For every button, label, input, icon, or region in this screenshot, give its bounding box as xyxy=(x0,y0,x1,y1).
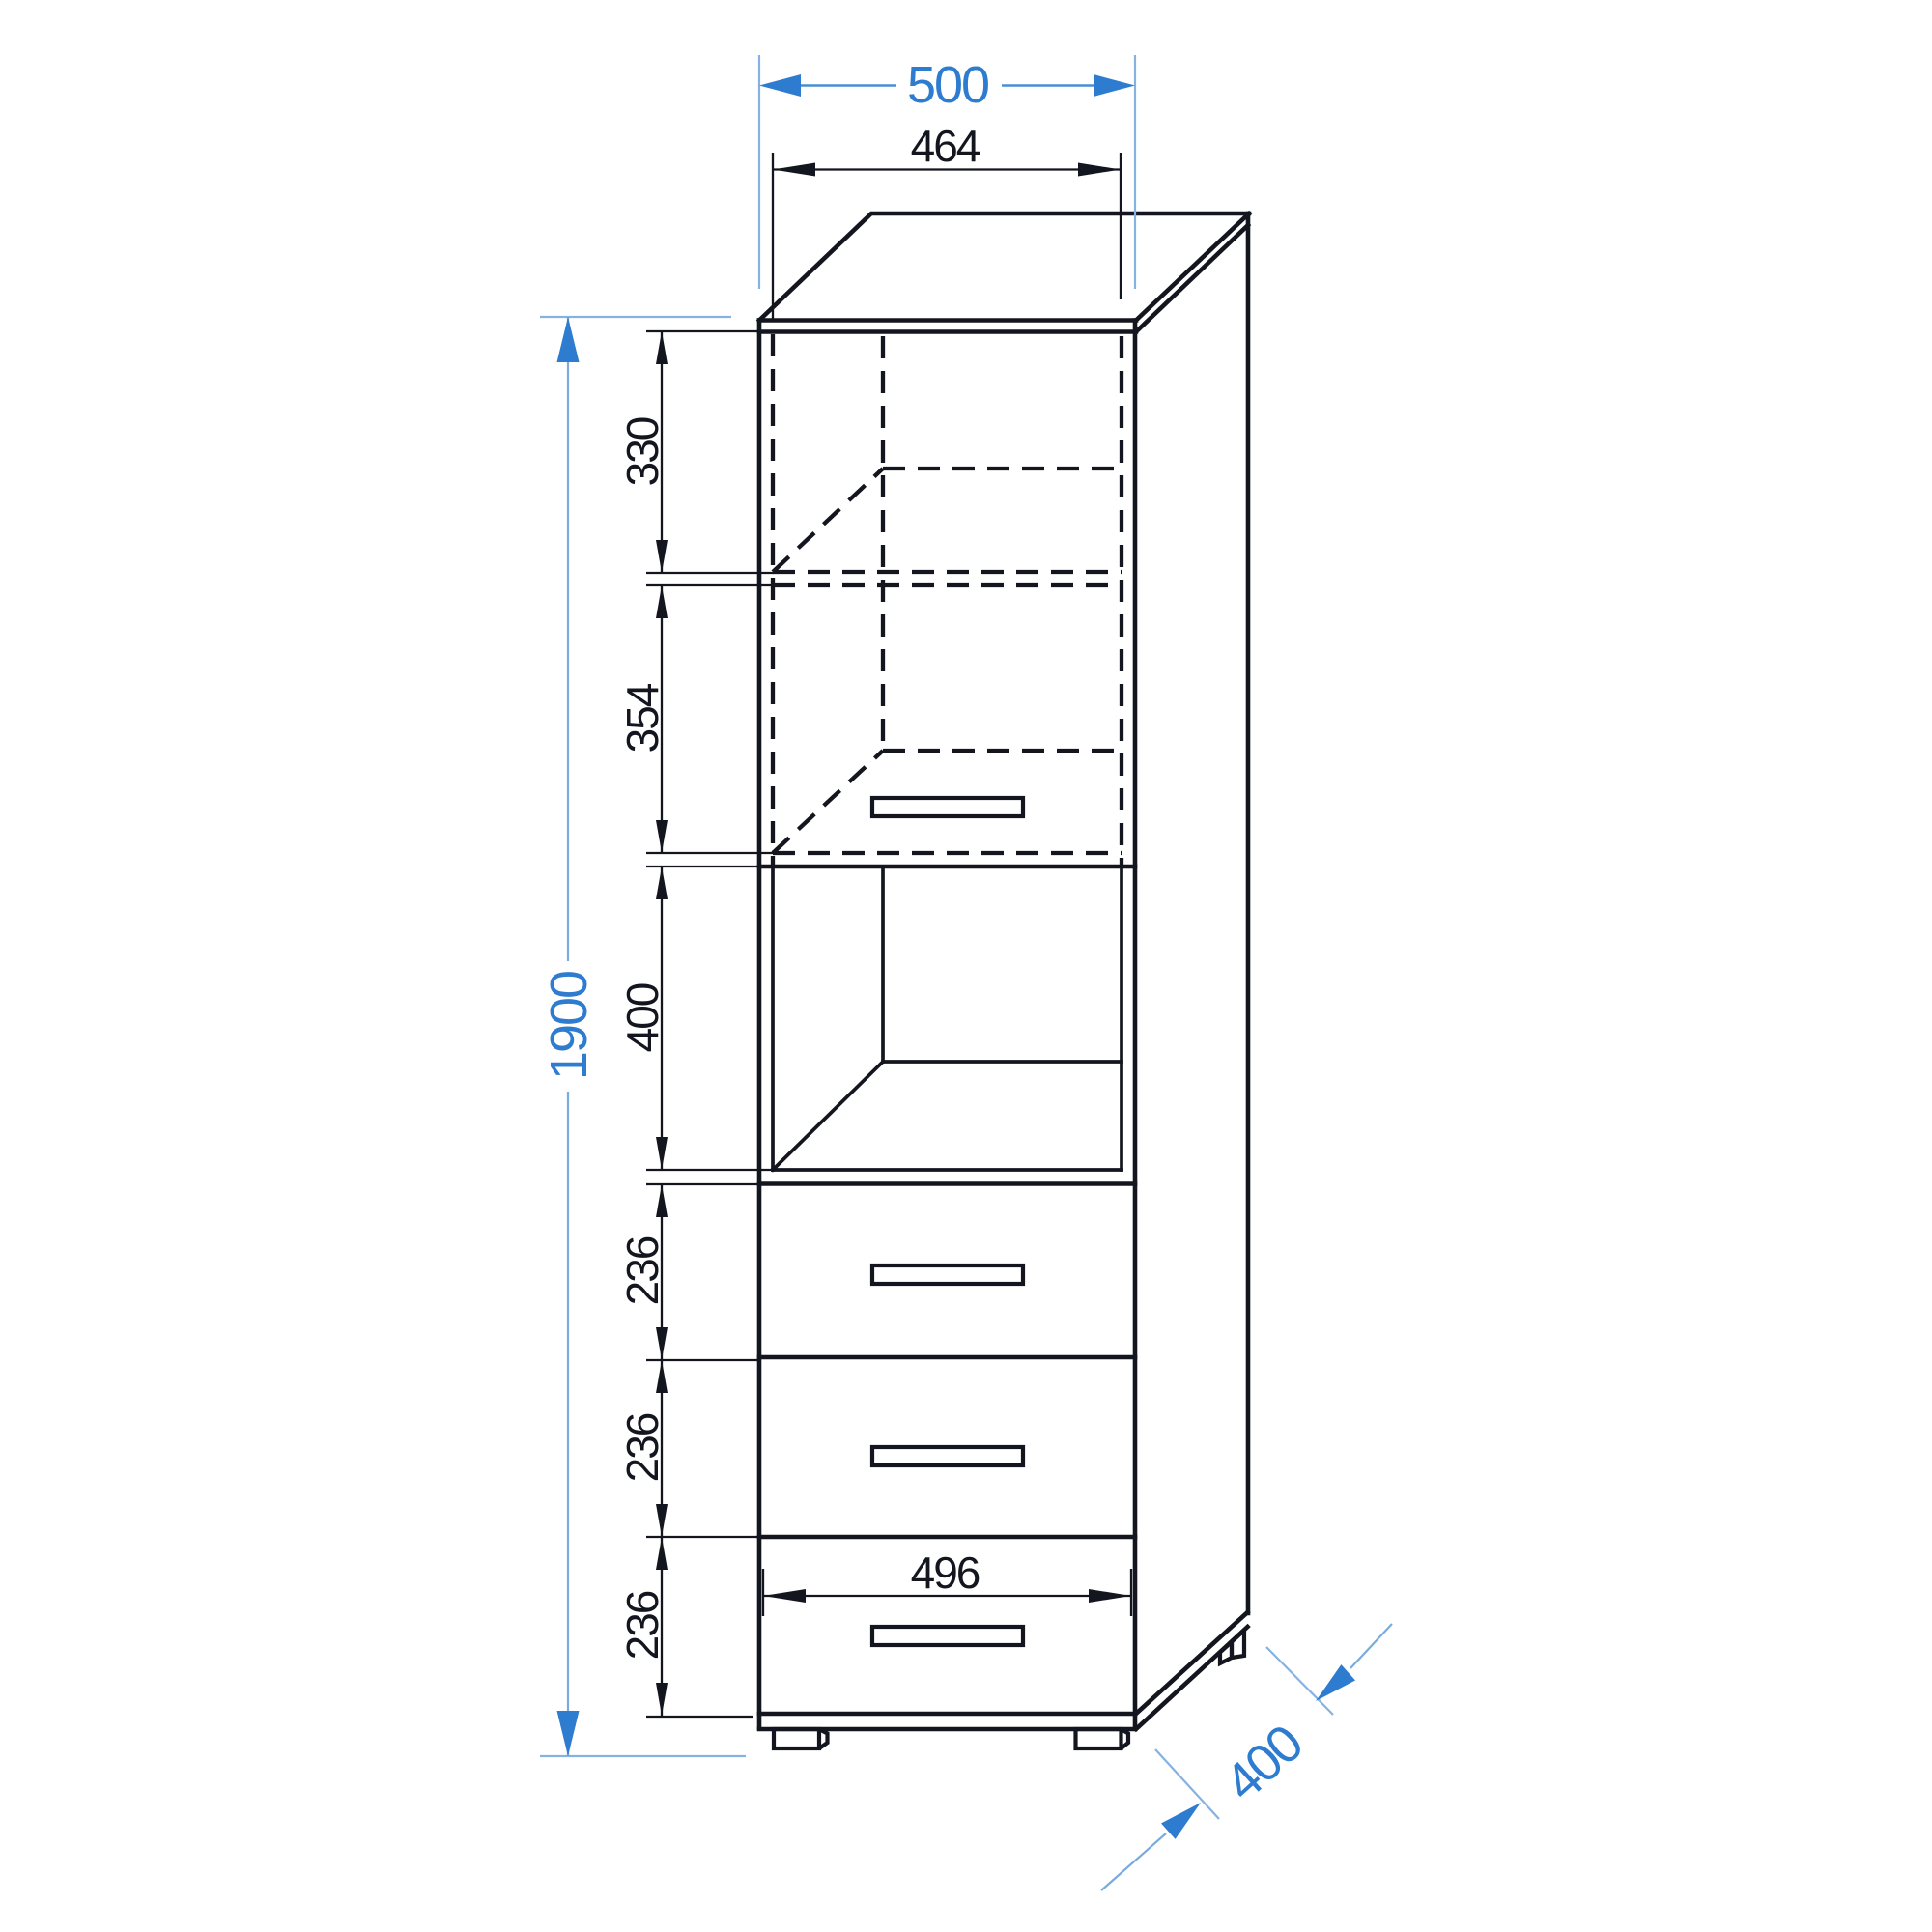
svg-text:236: 236 xyxy=(617,1591,668,1660)
svg-text:236: 236 xyxy=(617,1236,668,1305)
svg-text:500: 500 xyxy=(907,56,988,114)
svg-text:464: 464 xyxy=(911,121,980,171)
svg-text:354: 354 xyxy=(617,683,668,753)
svg-text:330: 330 xyxy=(617,417,668,486)
svg-text:1900: 1900 xyxy=(540,972,598,1080)
svg-text:400: 400 xyxy=(617,983,668,1052)
svg-text:496: 496 xyxy=(911,1548,980,1598)
svg-text:236: 236 xyxy=(617,1413,668,1482)
